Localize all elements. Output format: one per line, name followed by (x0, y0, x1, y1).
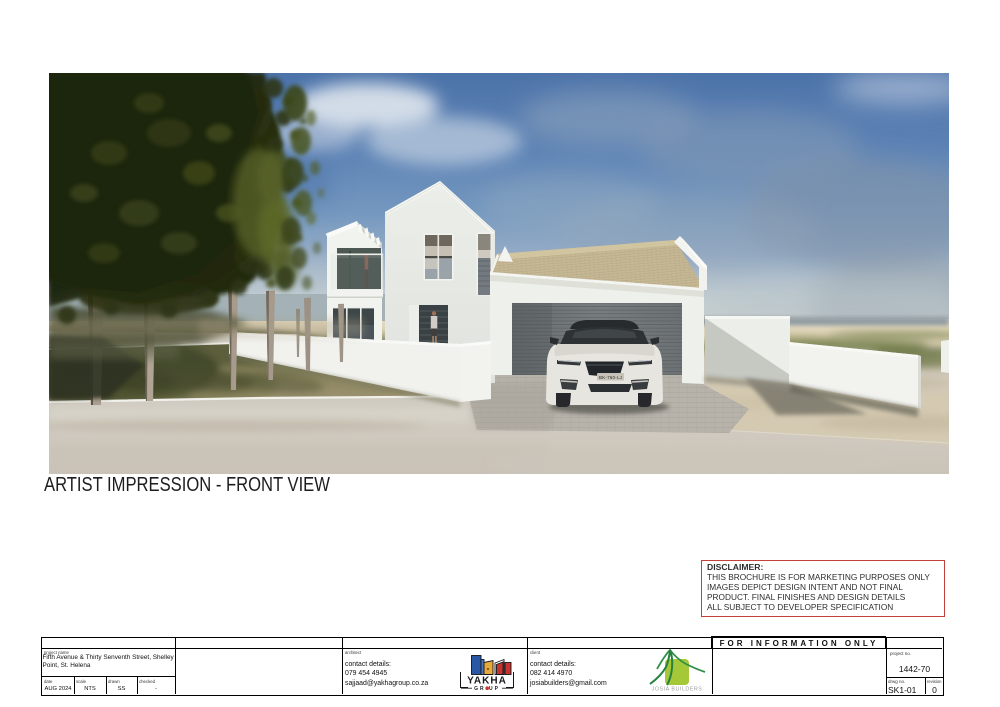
svg-text:YAKHA: YAKHA (467, 676, 507, 687)
svg-text:BK-760-LJ: BK-760-LJ (599, 375, 622, 380)
svg-text:JOSIA BUILDERS: JOSIA BUILDERS (652, 687, 703, 693)
